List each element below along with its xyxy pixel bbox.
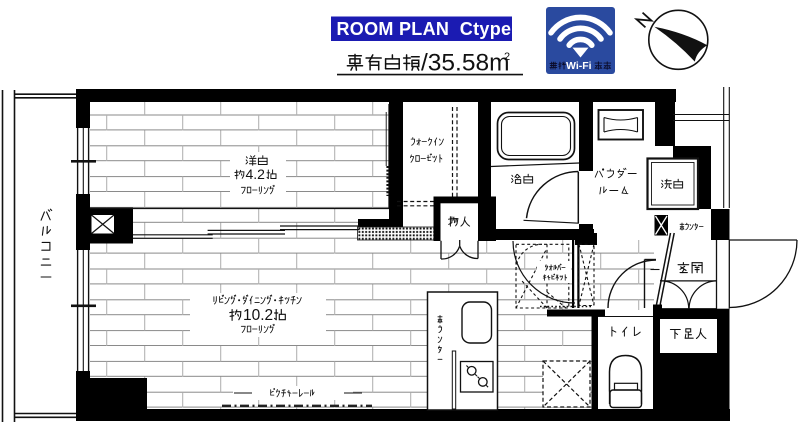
svg-text:/35.58m: /35.58m [421,50,510,77]
svg-text:Wi-Fi: Wi-Fi [566,60,592,72]
svg-text:10.2: 10.2 [243,307,273,324]
svg-text:4.2: 4.2 [246,166,266,182]
svg-text:2: 2 [504,51,510,63]
svg-text:ROOM PLAN Ctype: ROOM PLAN Ctype [337,19,512,39]
